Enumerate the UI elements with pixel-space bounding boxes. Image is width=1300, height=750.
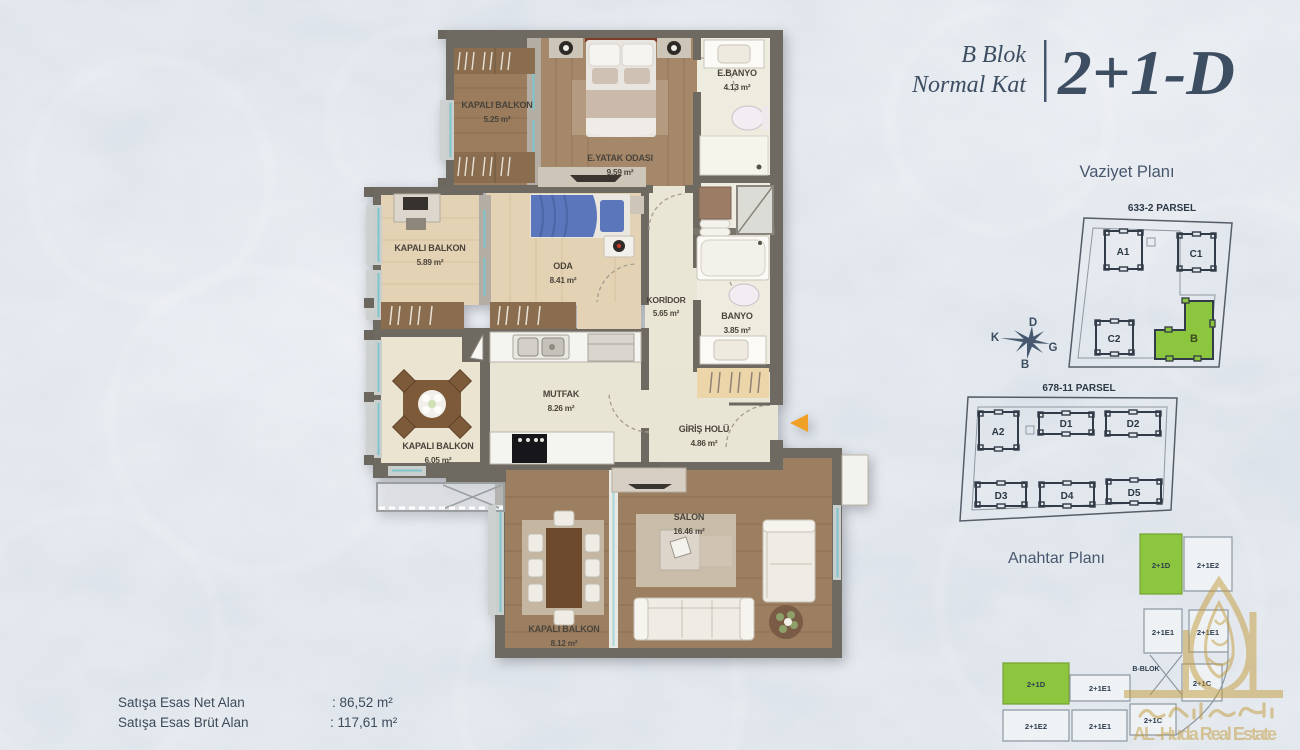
svg-text:B Blok: B Blok	[961, 42, 1026, 68]
svg-text:A1: A1	[1117, 247, 1130, 258]
svg-text:: 86,52 m²: : 86,52 m²	[332, 695, 393, 710]
svg-text:2+1E1: 2+1E1	[1089, 722, 1112, 731]
svg-text:Satışa Esas Net Alan: Satışa Esas Net Alan	[118, 695, 245, 710]
svg-text:B: B	[1190, 333, 1198, 345]
svg-text:D5: D5	[1128, 488, 1141, 499]
svg-text:678-11 PARSEL: 678-11 PARSEL	[1042, 383, 1115, 394]
svg-text:633-2 PARSEL: 633-2 PARSEL	[1128, 203, 1196, 214]
svg-text:2+1E1: 2+1E1	[1152, 628, 1175, 637]
svg-text:C1: C1	[1190, 249, 1203, 260]
svg-text:D4: D4	[1061, 491, 1074, 502]
svg-text:Satışa Esas Brüt Alan: Satışa Esas Brüt Alan	[118, 715, 249, 730]
svg-text:D3: D3	[995, 491, 1008, 502]
svg-text:Anahtar Planı: Anahtar Planı	[1008, 550, 1105, 567]
svg-text:K: K	[991, 332, 1000, 344]
svg-text:2+1E1: 2+1E1	[1089, 684, 1112, 693]
svg-text:2+1E2: 2+1E2	[1025, 722, 1047, 731]
svg-text:G: G	[1049, 342, 1058, 354]
svg-text:D1: D1	[1060, 419, 1073, 430]
svg-text:2+1D: 2+1D	[1152, 561, 1171, 570]
svg-text:B: B	[1021, 359, 1029, 371]
svg-text:A2: A2	[992, 427, 1005, 438]
svg-text:B-BLOK: B-BLOK	[1132, 666, 1159, 673]
svg-text:D2: D2	[1127, 419, 1140, 430]
svg-text:2+1D: 2+1D	[1027, 680, 1046, 689]
svg-text:Vaziyet Planı: Vaziyet Planı	[1079, 163, 1174, 181]
svg-text:2+1-D: 2+1-D	[1057, 37, 1235, 108]
svg-text:AL -Huda Real Estate: AL -Huda Real Estate	[1133, 724, 1277, 744]
svg-text:2+1E2: 2+1E2	[1197, 561, 1219, 570]
svg-text:C2: C2	[1108, 334, 1121, 345]
svg-text:Normal Kat: Normal Kat	[911, 72, 1027, 98]
svg-text:D: D	[1029, 317, 1037, 329]
svg-text:: 117,61 m²: : 117,61 m²	[330, 715, 398, 730]
